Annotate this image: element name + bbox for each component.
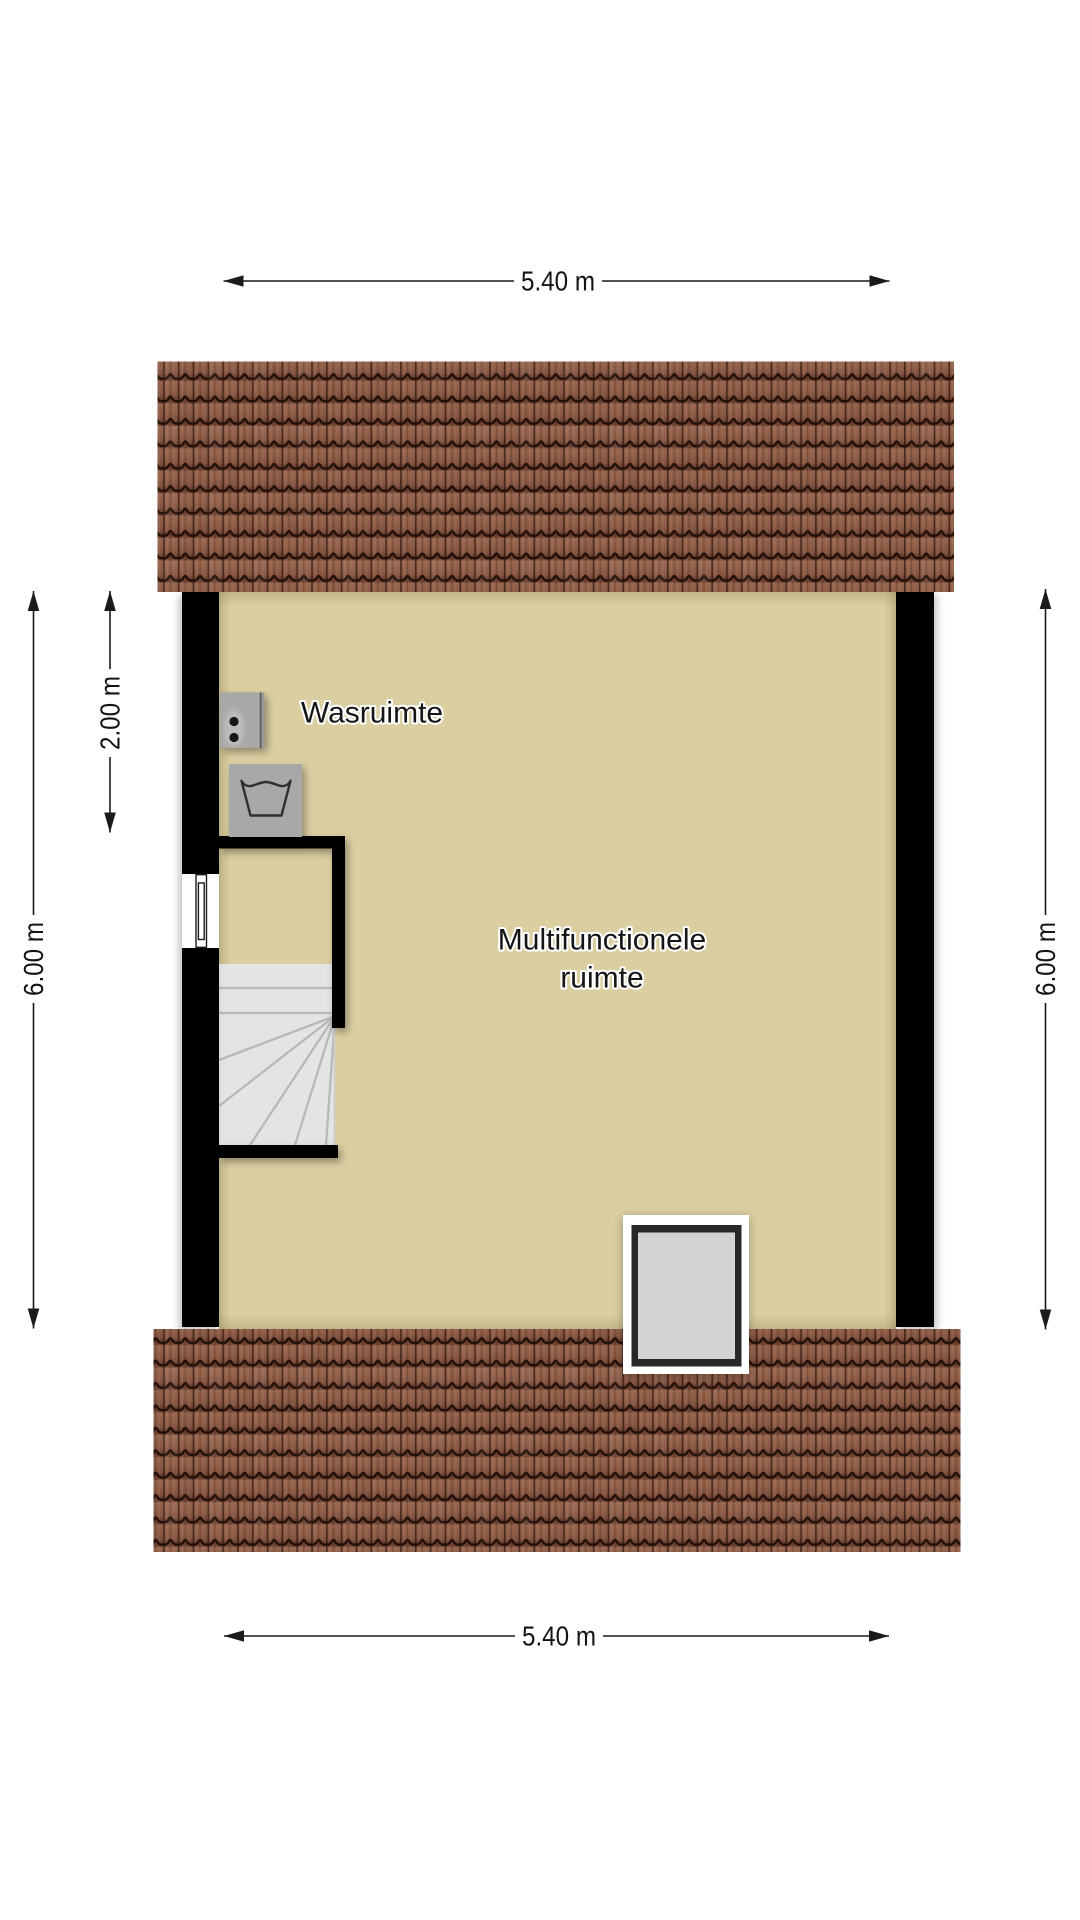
svg-text:Multifunctionele: Multifunctionele	[498, 924, 706, 957]
svg-text:ruimte: ruimte	[560, 962, 643, 995]
svg-text:6.00 m: 6.00 m	[1030, 922, 1061, 996]
svg-text:2.00 m: 2.00 m	[95, 676, 126, 750]
svg-text:Wasruimte: Wasruimte	[301, 697, 443, 730]
svg-text:5.40 m: 5.40 m	[522, 1621, 596, 1652]
svg-text:6.00 m: 6.00 m	[18, 922, 49, 996]
svg-text:5.40 m: 5.40 m	[521, 266, 595, 297]
